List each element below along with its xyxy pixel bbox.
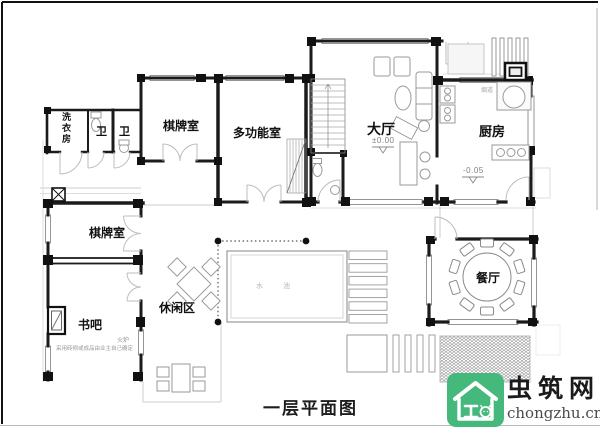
room-label-wc-left: 卫	[96, 127, 107, 138]
room-label-multi-function: 多功能室	[233, 127, 281, 139]
pool-label: 水 池	[256, 283, 299, 290]
columns	[43, 37, 538, 381]
paving-square	[347, 335, 387, 372]
site-logo	[447, 373, 504, 427]
room-label-kitchen: 厨房	[479, 125, 505, 138]
leisure-set	[157, 258, 220, 392]
bar-counter	[400, 142, 417, 185]
armchair	[374, 57, 390, 76]
room-label-dining: 餐厅	[476, 272, 500, 284]
chair	[202, 258, 220, 276]
pool-steps	[349, 251, 387, 323]
fireplace-note: 采用砖砌或成品由业主自己确定	[56, 347, 133, 353]
room-label-leisure: 休闲区	[159, 302, 195, 314]
armchair	[394, 57, 410, 76]
chair	[193, 367, 205, 377]
elevation-hall: ±0.00	[372, 137, 394, 145]
plan-title: 一层平面图	[263, 400, 358, 417]
bar-stool	[420, 152, 430, 162]
wash-basin	[331, 186, 340, 195]
floor-plan-drawing	[0, 0, 600, 429]
bar-stool	[420, 169, 430, 179]
main-staircase	[311, 79, 345, 153]
walls	[46, 41, 537, 380]
secondary-staircase	[287, 139, 306, 193]
elevation-kitchen: -0.05	[463, 167, 484, 175]
chair	[168, 258, 186, 276]
room-label-laundry: 洗衣房	[61, 112, 70, 145]
room-label-book-bar: 书吧	[78, 319, 102, 331]
room-label-wc-right: 卫	[119, 127, 130, 138]
toilet-bowl	[313, 164, 322, 177]
stove-label: 火炉	[117, 338, 129, 344]
room-label-chess-top: 棋牌室	[163, 120, 199, 132]
chair	[157, 367, 169, 377]
sofa	[416, 72, 432, 120]
leisure-table	[177, 267, 211, 301]
side-table	[419, 121, 430, 132]
flue-label: 烟道	[481, 88, 493, 94]
floor-plan-page: 洗衣房 卫 卫 棋牌室 多功能室 大厅 厨房 棋牌室 书吧 休闲区 餐厅 水 池…	[0, 0, 600, 429]
stove-circle	[503, 86, 525, 108]
room-label-chess-west: 棋牌室	[89, 227, 125, 239]
logo-site-name: 虫筑网	[507, 376, 600, 401]
patio-table	[172, 364, 190, 392]
toilet-tank	[91, 112, 101, 118]
chair	[193, 381, 205, 391]
coffee-table	[395, 86, 411, 110]
logo-site-domain: chongzhu.cn	[507, 406, 600, 421]
room-label-hall: 大厅	[367, 122, 395, 136]
chair	[157, 381, 169, 391]
entry-mat	[448, 44, 484, 74]
paving-strips	[393, 335, 435, 372]
